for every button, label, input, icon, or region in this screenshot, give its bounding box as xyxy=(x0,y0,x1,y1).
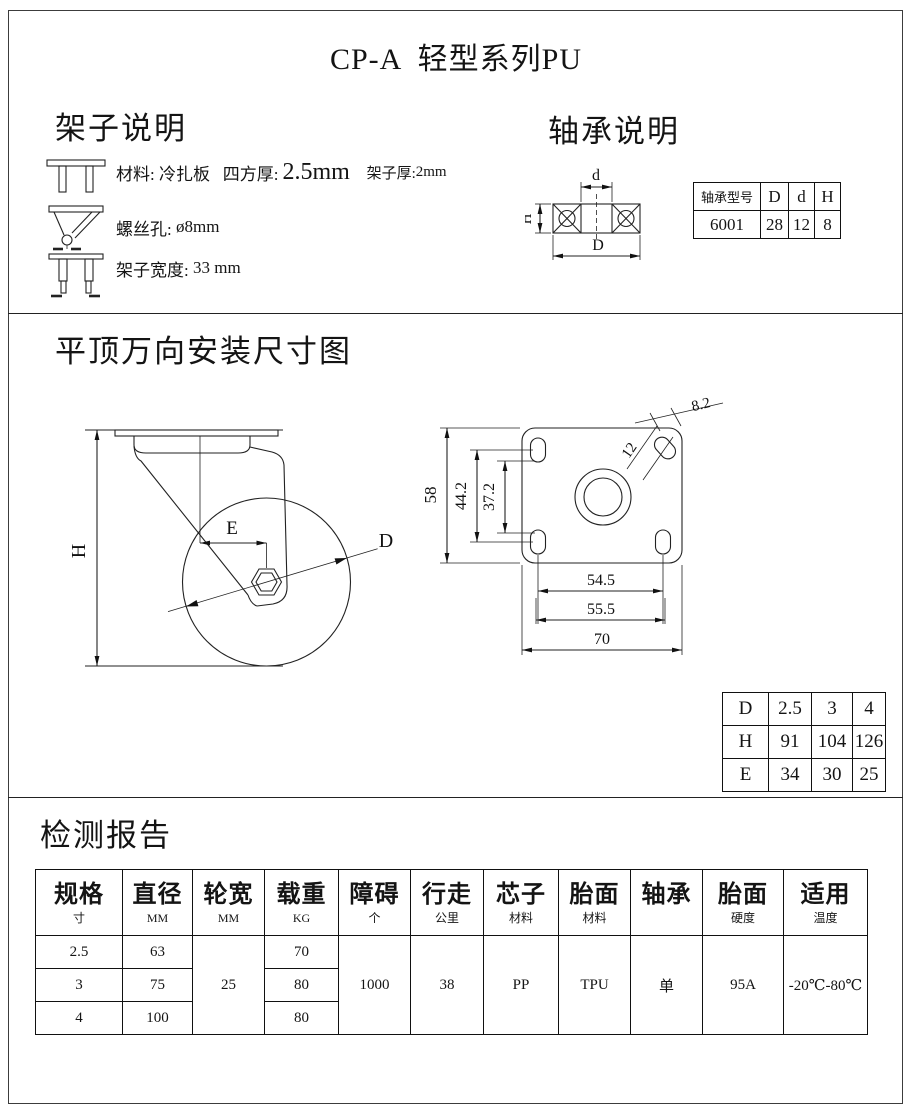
bearing-type-header: 轴承型号 xyxy=(694,183,761,211)
screw-hole-note: 螺丝孔: ø8mm xyxy=(116,212,219,242)
square-thickness-value: 2.5mm xyxy=(282,159,349,186)
col-diameter-sub: MM xyxy=(123,910,192,926)
col-wheel-width-sub: MM xyxy=(193,910,264,926)
bearing-section-heading: 轴承说明 xyxy=(548,106,680,151)
bearing-diagram: d D H xyxy=(525,166,690,278)
col-distance-main: 行走 xyxy=(411,880,483,910)
bearing-col-D: D xyxy=(761,183,789,211)
col-distance: 行走公里 xyxy=(411,870,484,936)
frame-material-icon xyxy=(45,155,109,203)
dhe-cell: 25 xyxy=(853,759,886,792)
dhe-row-E-label: E xyxy=(723,759,769,792)
col-load-main: 载重 xyxy=(265,880,338,910)
plate-dim-8-2: 8.2 xyxy=(690,395,712,415)
col-core: 芯子材料 xyxy=(484,870,559,936)
spec-cell: 3 xyxy=(36,969,123,1002)
section-divider-2 xyxy=(8,797,903,798)
col-diameter-main: 直径 xyxy=(123,880,192,910)
dhe-cell: 3 xyxy=(812,693,853,726)
col-load: 载重KG xyxy=(265,870,339,936)
spec-cell: 2.5 xyxy=(36,936,123,969)
col-tread: 胎面材料 xyxy=(559,870,631,936)
col-temperature-sub: 温度 xyxy=(784,910,867,926)
dhe-cell: 104 xyxy=(812,726,853,759)
bearing-val-D: 28 xyxy=(761,211,789,239)
page-title: CP-A 轻型系列PU xyxy=(0,34,912,78)
bearing-table: 轴承型号 D d H 6001 28 12 8 xyxy=(693,182,841,239)
temperature-cell: -20℃-80℃ xyxy=(784,936,868,1035)
side-dim-H-label: H xyxy=(70,544,90,558)
screw-hole-label: 螺丝孔: xyxy=(116,215,172,240)
col-distance-sub: 公里 xyxy=(411,910,483,926)
core-cell: PP xyxy=(484,936,559,1035)
frame-width-value: 33 mm xyxy=(193,258,241,278)
bearing-val-d: 12 xyxy=(789,211,815,239)
plate-dim-12: 12 xyxy=(619,440,641,461)
col-obstacle-main: 障碍 xyxy=(339,880,410,910)
plate-dim-54-5: 54.5 xyxy=(587,572,615,589)
caster-side-view: H E D xyxy=(70,403,435,703)
report-heading: 检测报告 xyxy=(40,810,172,855)
col-temperature-main: 适用 xyxy=(784,880,867,910)
col-hardness-main: 胎面 xyxy=(703,880,783,910)
col-tread-sub: 材料 xyxy=(559,910,630,926)
col-obstacle-sub: 个 xyxy=(339,910,410,926)
side-dim-E-label: E xyxy=(226,518,238,539)
hardness-cell: 95A xyxy=(703,936,784,1035)
wheel-width-cell: 25 xyxy=(193,936,265,1035)
col-spec: 规格寸 xyxy=(36,870,123,936)
load-cell: 80 xyxy=(265,969,339,1002)
col-wheel-width: 轮宽MM xyxy=(193,870,265,936)
diameter-cell: 75 xyxy=(123,969,193,1002)
frame-thickness-label: 架子厚: xyxy=(367,162,416,183)
tread-cell: TPU xyxy=(559,936,631,1035)
dhe-cell: 91 xyxy=(769,726,812,759)
dhe-cell: 126 xyxy=(853,726,886,759)
col-load-sub: KG xyxy=(265,910,338,926)
distance-cell: 38 xyxy=(411,936,484,1035)
dhe-cell: 4 xyxy=(853,693,886,726)
col-diameter: 直径MM xyxy=(123,870,193,936)
dhe-cell: 30 xyxy=(812,759,853,792)
spec-cell: 4 xyxy=(36,1002,123,1035)
bearing-col-d: d xyxy=(789,183,815,211)
plate-dim-55-5: 55.5 xyxy=(587,601,615,618)
material-label: 材料: 冷扎板 xyxy=(116,160,210,185)
report-table: 规格寸 直径MM 轮宽MM 载重KG 障碍个 行走公里 芯子材料 胎面材料 轴承… xyxy=(35,869,868,1035)
frame-width-label: 架子宽度: xyxy=(116,256,189,281)
load-cell: 80 xyxy=(265,1002,339,1035)
screw-hole-icon xyxy=(45,202,109,254)
bearing-val-H: 8 xyxy=(815,211,841,239)
plate-dim-70: 70 xyxy=(594,631,610,648)
spec-sheet-page: CP-A 轻型系列PU 架子说明 材料: 冷扎板 四方厚: 2.5mm 架子厚:… xyxy=(0,0,912,1112)
col-tread-main: 胎面 xyxy=(559,880,630,910)
mounting-heading: 平顶万向安装尺寸图 xyxy=(55,326,352,371)
col-hardness: 胎面硬度 xyxy=(703,870,784,936)
frame-width-note: 架子宽度: 33 mm xyxy=(116,253,241,283)
plate-dim-37-2: 37.2 xyxy=(481,483,498,511)
frame-width-icon xyxy=(47,250,107,304)
diameter-cell: 63 xyxy=(123,936,193,969)
plate-dim-44-2: 44.2 xyxy=(453,482,470,510)
diameter-cell: 100 xyxy=(123,1002,193,1035)
frame-material-note: 材料: 冷扎板 四方厚: 2.5mm 架子厚: 2mm xyxy=(116,152,447,192)
section-divider-1 xyxy=(8,313,903,314)
load-cell: 70 xyxy=(265,936,339,969)
bearing-cell: 单 xyxy=(631,936,703,1035)
table-row: 2.5 63 25 70 1000 38 PP TPU 单 95A -20℃-8… xyxy=(36,936,868,969)
bearing-model: 6001 xyxy=(694,211,761,239)
col-spec-sub: 寸 xyxy=(36,910,122,926)
square-thickness-label: 四方厚: xyxy=(223,160,279,185)
side-dim-D-label: D xyxy=(379,530,393,552)
bearing-dim-H-label: H xyxy=(525,213,535,224)
bearing-dim-d-label: d xyxy=(592,167,600,184)
col-obstacle: 障碍个 xyxy=(339,870,411,936)
col-hardness-sub: 硬度 xyxy=(703,910,783,926)
col-core-main: 芯子 xyxy=(484,880,558,910)
bearing-dim-D-label: D xyxy=(592,237,604,254)
col-spec-main: 规格 xyxy=(36,880,122,910)
plate-top-view: 58 44.2 37.2 12 8.2 54.5 55.5 70 xyxy=(415,393,725,688)
frame-thickness-value: 2mm xyxy=(416,164,447,181)
dhe-cell: 34 xyxy=(769,759,812,792)
col-bearing-sub xyxy=(631,910,702,926)
col-core-sub: 材料 xyxy=(484,910,558,926)
col-wheel-width-main: 轮宽 xyxy=(193,880,264,910)
col-bearing: 轴承 xyxy=(631,870,703,936)
screw-hole-value: ø8mm xyxy=(176,217,219,237)
obstacle-cell: 1000 xyxy=(339,936,411,1035)
frame-section-heading: 架子说明 xyxy=(55,103,187,148)
plate-dim-58: 58 xyxy=(421,487,440,504)
col-bearing-main: 轴承 xyxy=(631,880,702,910)
dhe-table: D 2.5 3 4 H 91 104 126 E 34 30 25 xyxy=(722,692,886,792)
col-temperature: 适用温度 xyxy=(784,870,868,936)
bearing-col-H: H xyxy=(815,183,841,211)
dhe-row-H-label: H xyxy=(723,726,769,759)
dhe-cell: 2.5 xyxy=(769,693,812,726)
dhe-row-D-label: D xyxy=(723,693,769,726)
